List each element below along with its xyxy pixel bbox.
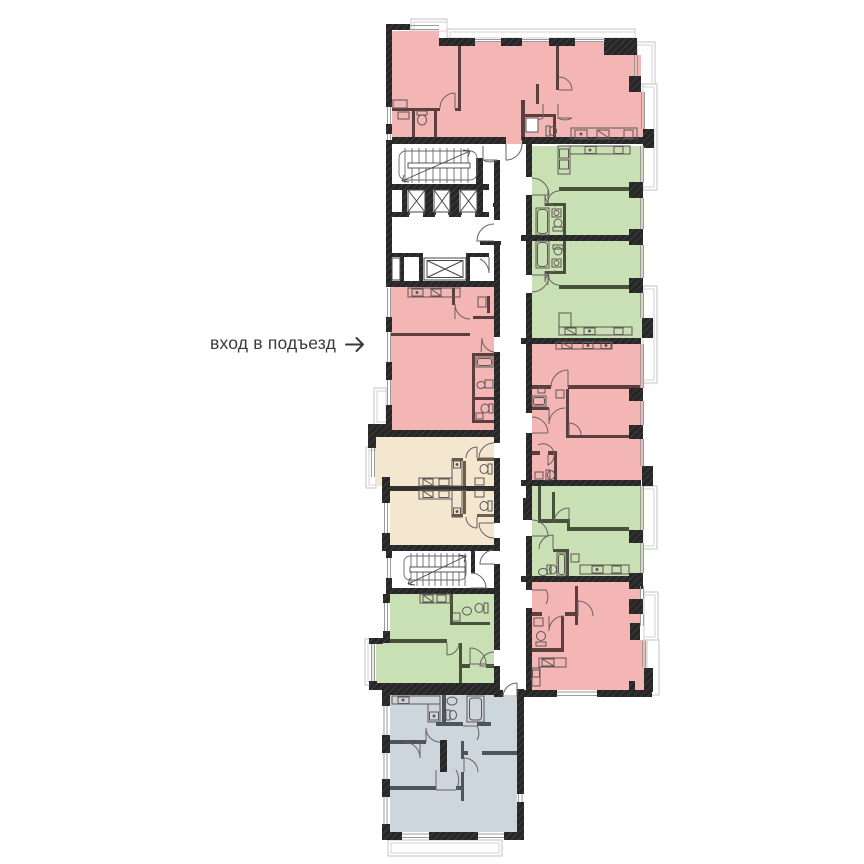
svg-text:вход в подъезд: вход в подъезд xyxy=(210,333,336,353)
